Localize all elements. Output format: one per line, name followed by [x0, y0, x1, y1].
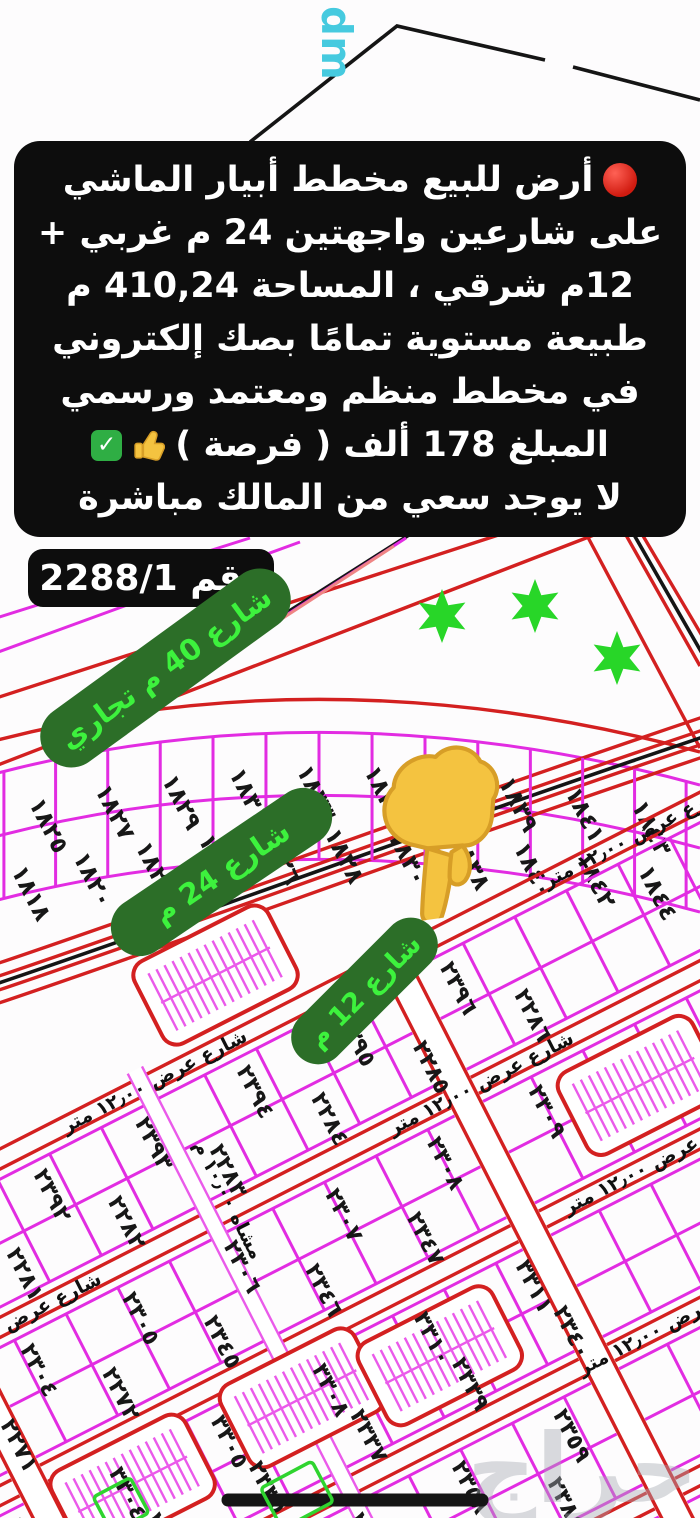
banner-text: المبلغ 178 ألف ( فرصة ) — [175, 419, 609, 472]
top-watermark-text: dm — [312, 6, 361, 80]
banner-text: في مخطط منظم ومعتمد ورسمي — [60, 366, 639, 419]
plot-number: ١٨١٨ — [6, 861, 58, 926]
plot-number: ٢٣٩٢ — [27, 1165, 76, 1227]
star-icon — [419, 589, 466, 643]
plot-number: ٢٣٠٤ — [14, 1340, 63, 1402]
boundary-line — [250, 26, 545, 142]
plot-number: ١٨٢٥ — [23, 793, 75, 858]
listing-banner: أرض للبيع مخطط أبيار الماشي على شارعين و… — [14, 141, 686, 537]
plot-number: ٢٢٨٢ — [102, 1192, 151, 1254]
boundary-line — [573, 67, 700, 100]
listing-post-image: ١٨٢٥١٨٢٧١٨٢٩١٨٣١١٨٣٣١٨٣٥١٨٣٧١٨٣٩١٨٤١١٨٤٣… — [0, 0, 700, 1518]
plot-number: ١٨٢٠ — [67, 847, 119, 912]
star-icon — [594, 631, 641, 685]
star-icon — [512, 579, 559, 633]
red-circle-emoji — [603, 163, 637, 197]
banner-line: طبيعة مستوية تمامًا بصك إلكتروني — [32, 313, 668, 366]
banner-line: أرض للبيع مخطط أبيار الماشي — [32, 154, 668, 207]
pointing-hand-emoji — [353, 727, 544, 927]
banner-text: على شارعين واجهتين 24 م غربي + — [38, 207, 662, 260]
plot-number: ٢٣٠٥ — [116, 1288, 165, 1350]
road-centerline — [629, 526, 700, 662]
banner-line: المبلغ 178 ألف ( فرصة ) ✓ — [32, 419, 668, 472]
plot-grid: ٢٣٨٨٢٣٨٩٢٣٩١٢٣٩٢٢٣٩٣٢٣٩٤٢٣٩٥٢٣٩٦٢٢٧٨٢٢٨٠… — [0, 623, 700, 1518]
plot-number: ٢٢٧٢ — [96, 1363, 145, 1425]
map-road — [622, 528, 700, 666]
plot-number: ٢٣٩٤ — [231, 1061, 280, 1123]
banner-line: في مخطط منظم ومعتمد ورسمي — [32, 366, 668, 419]
plot-number: ٢٣٤٦ — [299, 1260, 348, 1322]
plot-number: ١٨٢٧ — [89, 779, 141, 844]
banner-text: طبيعة مستوية تمامًا بصك إلكتروني — [52, 313, 648, 366]
check-mark-emoji: ✓ — [91, 430, 122, 461]
banner-text: لا يوجد سعي من المالك مباشرة — [78, 472, 622, 525]
plot-number: ٢٣٤٧ — [401, 1208, 450, 1270]
thumbs-up-emoji — [132, 429, 165, 462]
plot-number: ٢٣٠٨ — [421, 1133, 470, 1195]
banner-text: 12م شرقي ، المساحة 410,24 م — [66, 260, 634, 313]
banner-line: 12م شرقي ، المساحة 410,24 م — [32, 260, 668, 313]
plot-number: ٢٣٤٥ — [198, 1311, 247, 1373]
plot-number: ٢٣٠٧ — [319, 1184, 368, 1246]
banner-text: أرض للبيع مخطط أبيار الماشي — [63, 154, 594, 207]
banner-line: لا يوجد سعي من المالك مباشرة — [32, 472, 668, 525]
banner-line: على شارعين واجهتين 24 م غربي + — [32, 207, 668, 260]
watermark-text: حراج — [467, 1413, 698, 1518]
